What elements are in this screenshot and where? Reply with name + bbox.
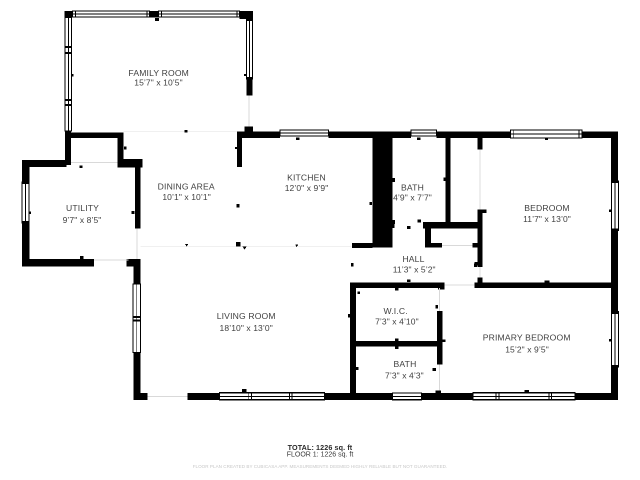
svg-text:HALL: HALL bbox=[402, 254, 424, 264]
svg-text:10’1" x 10’1": 10’1" x 10’1" bbox=[162, 192, 210, 202]
svg-text:BEDROOM: BEDROOM bbox=[524, 203, 569, 213]
svg-text:7’3" x 4’3": 7’3" x 4’3" bbox=[385, 370, 424, 380]
svg-text:PRIMARY BEDROOM: PRIMARY BEDROOM bbox=[483, 332, 571, 342]
svg-text:W.I.C.: W.I.C. bbox=[383, 306, 407, 316]
svg-text:UTILITY: UTILITY bbox=[66, 203, 99, 213]
svg-text:DINING AREA: DINING AREA bbox=[158, 182, 215, 192]
svg-text:BATH: BATH bbox=[394, 359, 417, 369]
svg-text:FLOOR PLAN CREATED BY CUBICASA: FLOOR PLAN CREATED BY CUBICASA APP. MEAS… bbox=[193, 464, 448, 469]
svg-text:7’3" x 4’10": 7’3" x 4’10" bbox=[375, 317, 419, 327]
svg-text:15’2" x 9’5": 15’2" x 9’5" bbox=[505, 344, 549, 354]
svg-text:KITCHEN: KITCHEN bbox=[287, 173, 326, 183]
svg-text:11’7" x 13’0": 11’7" x 13’0" bbox=[523, 214, 571, 224]
svg-text:18’10" x 13’0": 18’10" x 13’0" bbox=[220, 323, 273, 333]
svg-text:12’0" x 9’9": 12’0" x 9’9" bbox=[285, 183, 329, 193]
svg-text:FLOOR 1: 1226 sq. ft: FLOOR 1: 1226 sq. ft bbox=[287, 452, 354, 459]
svg-text:4’9" x 7’7": 4’9" x 7’7" bbox=[393, 193, 432, 203]
svg-text:15’7" x 10’5": 15’7" x 10’5" bbox=[134, 78, 182, 88]
svg-text:LIVING ROOM: LIVING ROOM bbox=[217, 311, 276, 321]
svg-text:9’7" x 8’5": 9’7" x 8’5" bbox=[63, 215, 102, 225]
svg-text:11’3" x 5’2": 11’3" x 5’2" bbox=[393, 264, 436, 274]
svg-text:BATH: BATH bbox=[401, 183, 424, 193]
